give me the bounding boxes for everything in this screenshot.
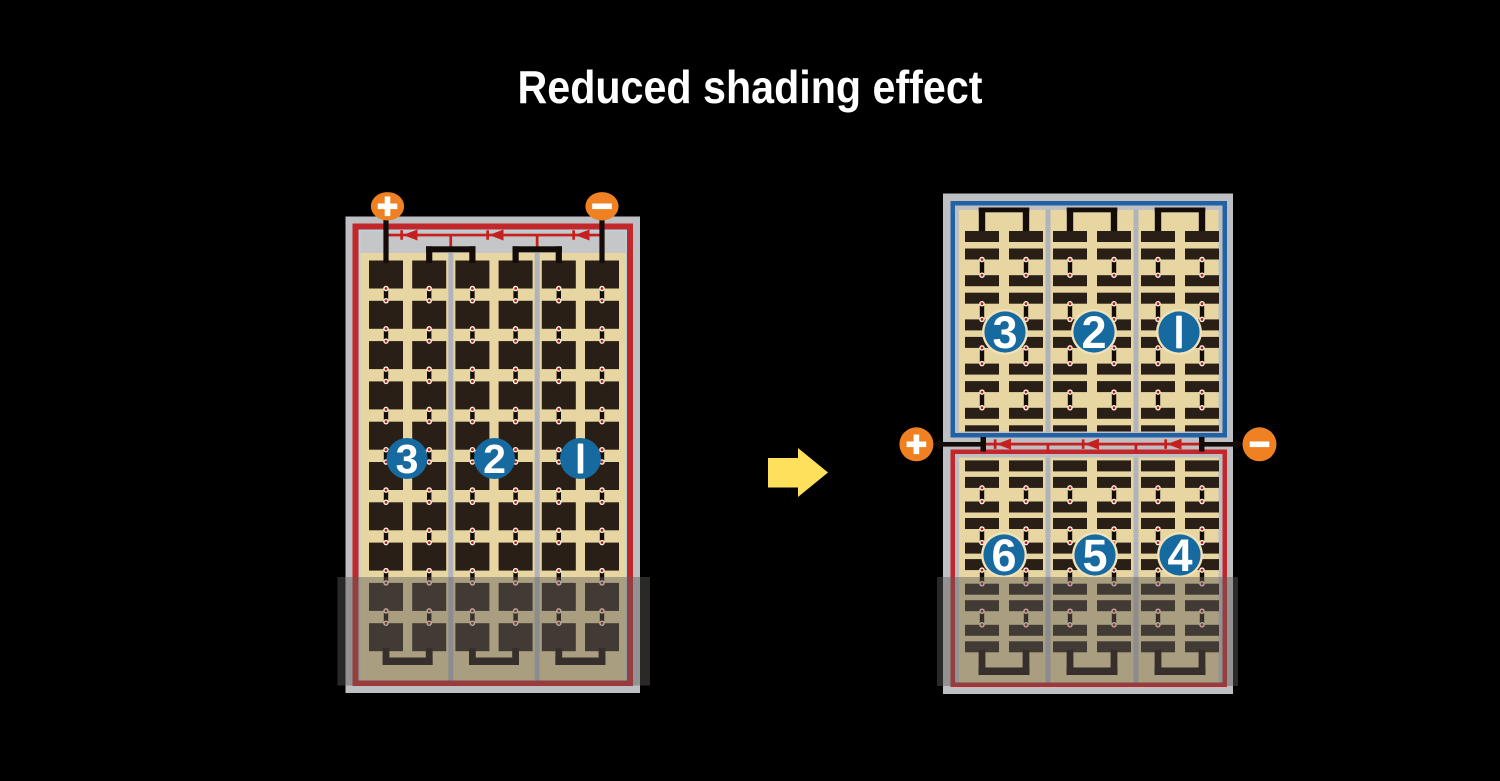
svg-text:3: 3 (396, 436, 419, 482)
svg-text:2: 2 (1081, 307, 1106, 358)
svg-text:4: 4 (1167, 530, 1192, 581)
svg-text:3: 3 (992, 307, 1017, 358)
svg-text:6: 6 (991, 530, 1016, 581)
svg-text:2: 2 (483, 436, 506, 482)
svg-text:Reduced shading effect: Reduced shading effect (518, 61, 983, 113)
svg-text:5: 5 (1082, 530, 1107, 581)
